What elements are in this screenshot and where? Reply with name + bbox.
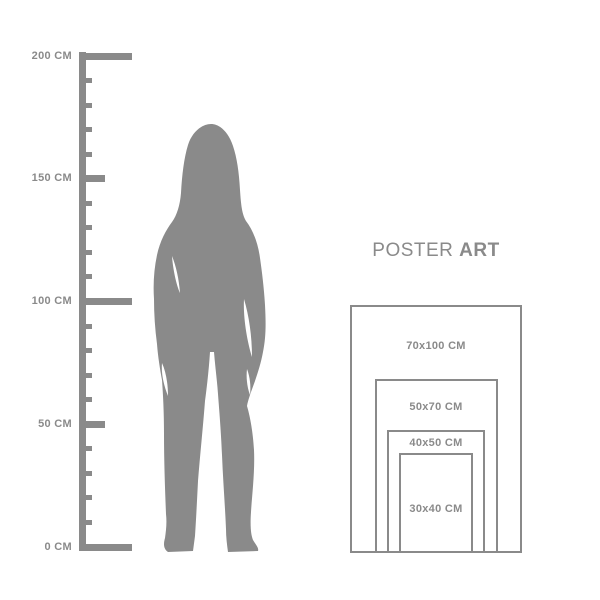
woman-silhouette-image (150, 118, 280, 558)
ruler-tick-110 (79, 274, 92, 279)
ruler-tick-140 (79, 201, 92, 206)
size-chart-diagram: 200 CM150 CM100 CM50 CM0 CM POSTER ART 7… (0, 0, 600, 600)
ruler-label-150: 150 CM (0, 172, 72, 185)
ruler-tick-10 (79, 520, 92, 525)
ruler-tick-50 (79, 421, 105, 428)
ruler-tick-160 (79, 152, 92, 157)
poster-size-label-70x100: 70x100 CM (350, 340, 522, 353)
poster-art-title: POSTER ART (350, 240, 522, 262)
poster-size-label-50x70: 50x70 CM (350, 401, 522, 414)
ruler-tick-90 (79, 324, 92, 329)
ruler-tick-150 (79, 175, 105, 182)
poster-size-label-30x40: 30x40 CM (350, 503, 522, 516)
ruler-tick-190 (79, 78, 92, 83)
ruler-tick-20 (79, 495, 92, 500)
height-ruler: 200 CM150 CM100 CM50 CM0 CM (0, 0, 140, 600)
ruler-tick-70 (79, 373, 92, 378)
ruler-tick-130 (79, 225, 92, 230)
ruler-tick-170 (79, 127, 92, 132)
ruler-tick-200 (79, 53, 132, 60)
ruler-tick-30 (79, 471, 92, 476)
ruler-tick-40 (79, 446, 92, 451)
ruler-label-50: 50 CM (0, 418, 72, 431)
poster-size-label-40x50: 40x50 CM (350, 437, 522, 450)
poster-title-regular: POSTER (372, 240, 453, 261)
ruler-label-0: 0 CM (0, 541, 72, 554)
ruler-tick-80 (79, 348, 92, 353)
ruler-tick-60 (79, 397, 92, 402)
woman-silhouette-path (154, 124, 266, 552)
ruler-tick-100 (79, 298, 132, 305)
poster-title-bold: ART (459, 240, 500, 261)
ruler-label-100: 100 CM (0, 295, 72, 308)
ruler-tick-120 (79, 250, 92, 255)
ruler-tick-180 (79, 103, 92, 108)
ruler-label-200: 200 CM (0, 50, 72, 63)
ruler-tick-0 (79, 544, 132, 551)
